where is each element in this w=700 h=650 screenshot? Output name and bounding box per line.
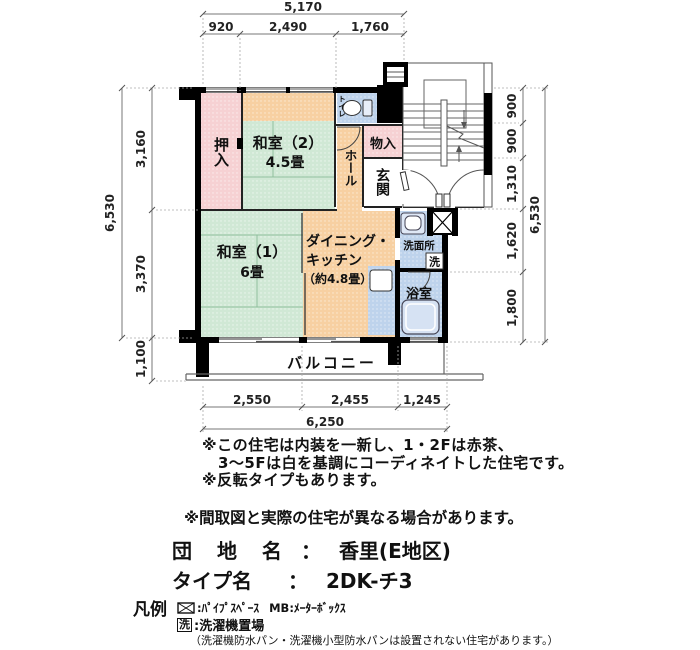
legend-mb-text: MB:ﾒｰﾀｰﾎﾞｯｸｽ [269, 600, 346, 616]
label-senmenjo: 洗面所 [403, 239, 435, 252]
estate-name-value: 香里(E地区) [339, 535, 451, 564]
estate-name-row: 団 地 名 ： 香里(E地区) [172, 535, 451, 564]
label-genkan: 玄関 [374, 167, 390, 197]
label-washitsu1: 和室（1） [217, 243, 287, 261]
dim-bottom-2: 1,245 [403, 393, 441, 407]
label-dk-2: キッチン [306, 253, 362, 269]
dim-top-2: 1,760 [351, 20, 389, 34]
label-dk-size: （約4.8畳） [303, 271, 372, 286]
alcove-strip-area [242, 93, 335, 121]
pipe-space-icon [177, 602, 195, 614]
dim-bottom-1: 2,455 [331, 393, 369, 407]
entrance-door [400, 170, 410, 204]
label-washitsu2: 和室（2） [253, 134, 323, 152]
legend-pipe-text: :ﾊﾟｲﾌﾟｽﾍﾟｰｽ [197, 600, 259, 616]
legend-title: 凡例 [133, 595, 167, 620]
estate-name-separator: ： [301, 535, 321, 564]
washer-place-box: 洗 [426, 253, 443, 269]
label-washer-mark: 洗 [429, 255, 440, 269]
estate-name-label: 団 地 名 [172, 535, 291, 564]
type-name-row: タイプ名 ： 2DK-チ3 [172, 565, 413, 594]
top-windows [206, 88, 333, 93]
label-oshiire: 押入 [212, 136, 230, 167]
legend-pipe-row: :ﾊﾟｲﾌﾟｽﾍﾟｰｽ MB:ﾒｰﾀｰﾎﾞｯｸｽ [177, 600, 346, 616]
legend-washer-note: （洗濯機防水パン・洗濯機小型防水パンは設置されない住宅があります。） [190, 632, 559, 648]
kitchen-sink-icon [370, 270, 392, 291]
label-washitsu2-size: 4.5畳 [266, 155, 305, 171]
plan-disclaimer: ※間取図と実際の住宅が異なる場合があります。 [184, 506, 523, 528]
label-bath: 浴室 [406, 286, 432, 302]
label-washitsu1-size: 6畳 [240, 265, 264, 281]
label-balcony: バルコニー [287, 354, 377, 372]
label-dk-1: ダイニング・ [306, 233, 390, 250]
dim-right-2: 1,310 [505, 165, 519, 203]
dim-top-0: 920 [208, 20, 233, 34]
type-name-label: タイプ名 [172, 565, 278, 594]
dim-bottom-total: 6,250 [306, 415, 344, 429]
type-name-value: 2DK-チ3 [326, 565, 413, 594]
renovation-note-line3: ※反転タイプもあります。 [202, 469, 386, 490]
pipe-space-box [432, 211, 453, 234]
bathtub-icon [402, 300, 439, 334]
dim-right-total: 6,530 [528, 196, 542, 234]
dim-left-0: 3,160 [134, 130, 148, 168]
dim-right-4: 1,800 [505, 289, 519, 327]
wall-stub [237, 138, 243, 149]
dim-left-2: 1,100 [134, 340, 148, 378]
type-name-separator: ： [288, 565, 308, 594]
dim-left-total: 6,530 [103, 194, 117, 232]
dim-top-1: 2,490 [269, 20, 307, 34]
dim-right-1: 900 [505, 128, 519, 153]
washer-box-icon: 洗 [177, 618, 192, 632]
dim-bottom-0: 2,550 [233, 393, 271, 407]
dim-top-total: 5,170 [284, 0, 322, 14]
dim-right-0: 900 [505, 93, 519, 118]
dim-left-1: 3,370 [134, 255, 148, 293]
floorplan-page: 押入 和室（2） 4.5畳 トイレ 物入 ホール 玄関 和室（1） 6畳 ダイニ… [0, 0, 700, 650]
label-monoire: 物入 [370, 136, 396, 152]
dim-right-3: 1,620 [505, 222, 519, 260]
washbasin-icon [401, 213, 425, 234]
toilet-icon [343, 100, 372, 116]
label-hall: ホール [343, 149, 358, 187]
label-toilet: トイレ [338, 95, 347, 118]
